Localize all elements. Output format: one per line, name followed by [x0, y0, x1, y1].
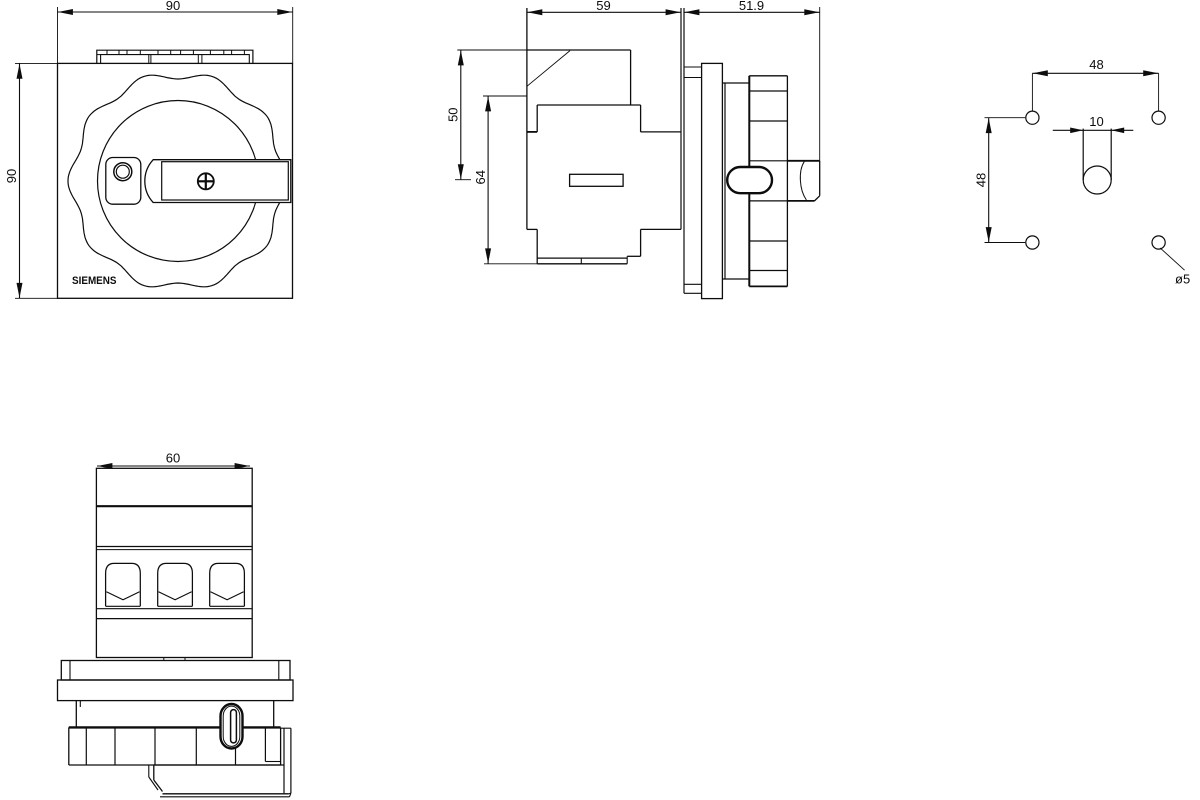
svg-text:48: 48: [1089, 57, 1103, 72]
svg-text:59: 59: [596, 0, 610, 13]
svg-text:90: 90: [166, 0, 180, 13]
svg-text:50: 50: [446, 107, 461, 121]
svg-text:51.9: 51.9: [739, 0, 764, 13]
svg-text:10: 10: [1089, 114, 1103, 129]
svg-text:90: 90: [4, 169, 19, 183]
svg-text:ø5: ø5: [1175, 272, 1190, 287]
svg-text:60: 60: [166, 451, 180, 466]
svg-text:64: 64: [473, 170, 488, 184]
svg-text:SIEMENS: SIEMENS: [72, 276, 117, 288]
svg-text:48: 48: [973, 173, 988, 187]
